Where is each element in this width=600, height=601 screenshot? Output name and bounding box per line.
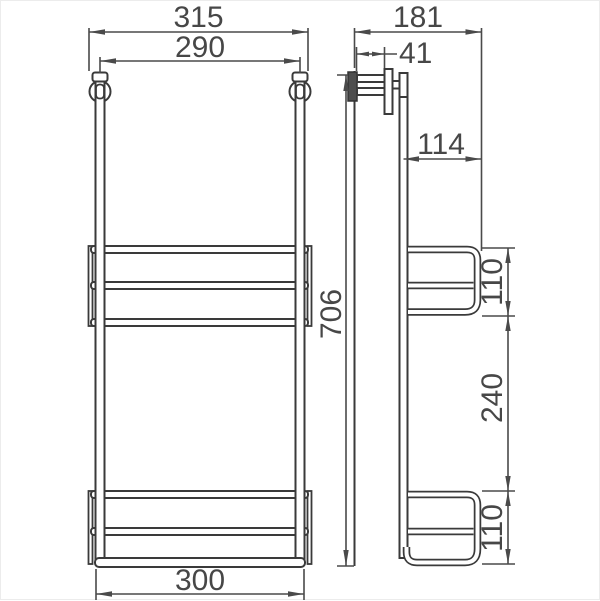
dim-label-hook-spacing: 290 bbox=[175, 31, 225, 64]
dim-overall-height: 706 bbox=[315, 75, 354, 566]
left-hook-cap bbox=[93, 73, 108, 82]
arrowhead-icon bbox=[357, 52, 370, 57]
right-hook-sleeve bbox=[296, 85, 304, 99]
dim-label-overall-width: 315 bbox=[173, 1, 223, 34]
arrowhead-icon bbox=[505, 316, 510, 331]
right-hook-cap bbox=[293, 73, 308, 82]
arrowhead-icon bbox=[96, 591, 112, 596]
arrowhead-icon bbox=[288, 591, 304, 596]
dim-label-upper-basket-height: 110 bbox=[476, 258, 509, 306]
dim-bottom-width: 300 bbox=[96, 564, 304, 600]
dim-right-stack: 110 240 110 bbox=[476, 248, 515, 564]
dim-basket-depth: 114 bbox=[404, 128, 482, 162]
upper-basket-bar bbox=[91, 282, 308, 289]
upper-basket-bar bbox=[91, 246, 308, 253]
arrowhead-icon bbox=[343, 550, 348, 566]
arrowhead-icon bbox=[284, 58, 300, 63]
rail-top-plate bbox=[400, 73, 408, 97]
left-hook-sleeve bbox=[96, 85, 104, 99]
bracket-arm-top bbox=[357, 75, 385, 82]
technical-drawing-page: 315 290 300 706 181 41 114 bbox=[0, 0, 600, 600]
arrowhead-icon bbox=[466, 156, 482, 161]
dim-hook-spacing: 290 bbox=[100, 31, 300, 73]
upper-basket-profile bbox=[408, 250, 478, 313]
side-rail bbox=[400, 91, 408, 558]
arrowhead-icon bbox=[372, 52, 385, 57]
dim-label-overall-height: 706 bbox=[315, 289, 348, 339]
front-lower-basket bbox=[89, 491, 312, 564]
side-lower-basket bbox=[407, 495, 478, 563]
dim-label-lower-basket-height: 110 bbox=[476, 504, 509, 552]
bracket-stub bbox=[393, 81, 400, 89]
bracket-flange bbox=[385, 69, 393, 114]
dim-label-overall-depth: 181 bbox=[393, 1, 443, 34]
dim-label-rail-gap: 240 bbox=[476, 373, 509, 423]
dim-label-basket-depth: 114 bbox=[417, 128, 465, 161]
arrowhead-icon bbox=[292, 29, 308, 34]
front-upper-basket bbox=[89, 246, 312, 326]
arrowhead-icon bbox=[505, 491, 510, 506]
upper-basket-bar bbox=[91, 319, 308, 326]
arrowhead-icon bbox=[100, 58, 116, 63]
dim-label-wall-arm: 41 bbox=[399, 37, 432, 70]
wall-plate bbox=[348, 72, 357, 101]
bracket-arm-bottom bbox=[357, 88, 385, 95]
arrowhead-icon bbox=[89, 29, 105, 34]
arrowhead-icon bbox=[505, 476, 510, 491]
drawing-svg: 315 290 300 706 181 41 114 bbox=[1, 1, 600, 601]
front-right-rail bbox=[296, 80, 305, 563]
side-upper-basket bbox=[408, 250, 478, 313]
upper-basket-profile bbox=[408, 250, 478, 313]
lower-basket-right-rim bbox=[308, 491, 312, 564]
arrowhead-icon bbox=[466, 29, 482, 34]
lower-basket-bar bbox=[91, 528, 308, 535]
lower-basket-bar bbox=[91, 491, 308, 498]
arrowhead-icon bbox=[355, 29, 371, 34]
front-view bbox=[89, 73, 312, 568]
front-left-rail bbox=[96, 80, 105, 563]
dim-lines bbox=[357, 47, 398, 71]
dim-wall-arm: 41 bbox=[357, 37, 433, 71]
dim-label-bottom-width: 300 bbox=[175, 564, 225, 597]
